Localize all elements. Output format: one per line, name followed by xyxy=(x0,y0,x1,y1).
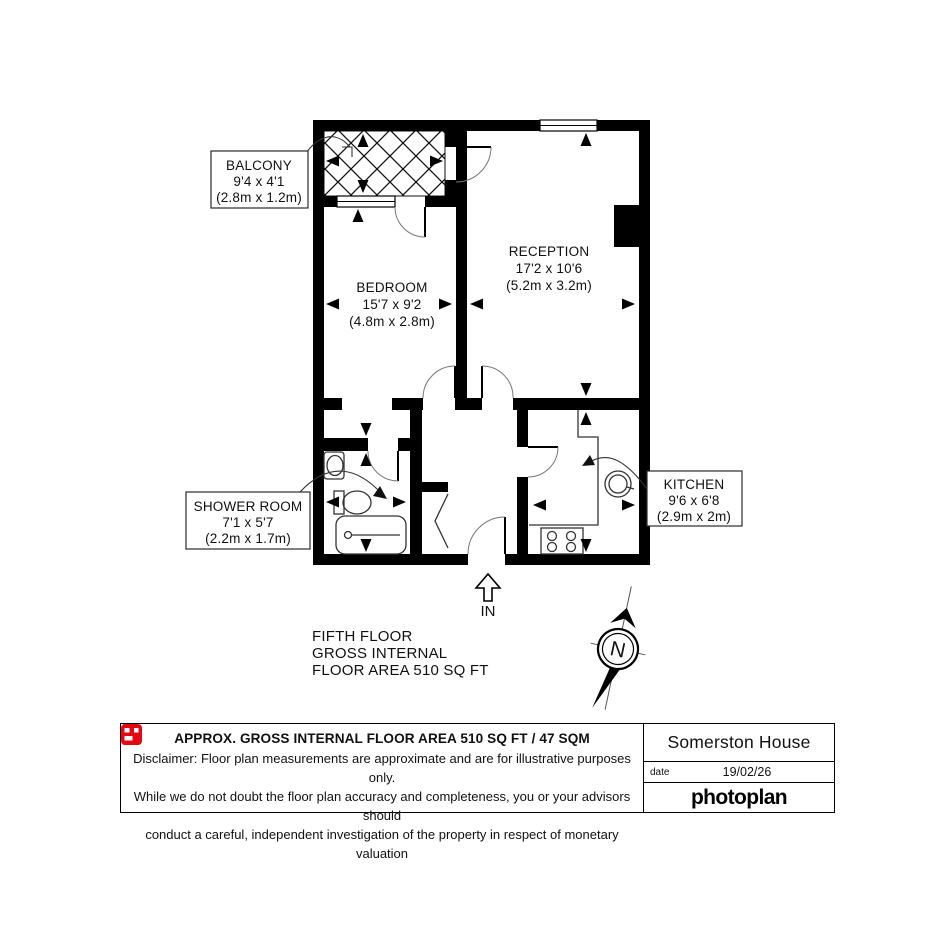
bedroom-size-metric: (4.8m x 2.8m) xyxy=(349,314,435,329)
date-label: date xyxy=(644,767,700,778)
shower-room-name: SHOWER ROOM xyxy=(194,499,303,514)
balcony-size-imperial: 9'4 x 4'1 xyxy=(233,174,284,189)
door-bedroom xyxy=(423,366,455,398)
bedroom-label: BEDROOM 15'7 x 9'2 (4.8m x 2.8m) xyxy=(349,280,435,329)
shower-room-size-imperial: 7'1 x 5'7 xyxy=(222,515,273,530)
disclaimer-line-2: While we do not doubt the floor plan acc… xyxy=(121,787,643,825)
floor-info-line1: FIFTH FLOOR xyxy=(312,628,413,645)
door-kitchen xyxy=(528,447,558,477)
footer-info-cell: Somerston House date 19/02/26 photoplan xyxy=(644,724,834,812)
north-compass-icon: N xyxy=(578,581,659,717)
shower-room-size-metric: (2.2m x 1.7m) xyxy=(205,531,291,546)
balcony-name: BALCONY xyxy=(226,158,292,173)
entrance-arrow-icon xyxy=(476,574,500,601)
photoplan-wordmark: photoplan xyxy=(691,786,787,810)
kitchen-name: KITCHEN xyxy=(664,477,725,492)
footer-disclaimer-cell: APPROX. GROSS INTERNAL FLOOR AREA 510 SQ… xyxy=(121,724,644,812)
bedroom-name: BEDROOM xyxy=(356,280,427,295)
bathtub xyxy=(336,516,406,554)
door-balcony-bedroom xyxy=(395,207,425,237)
balcony-size-metric: (2.8m x 1.2m) xyxy=(216,190,302,205)
reception-size-imperial: 17'2 x 10'6 xyxy=(516,261,583,276)
footer-table: APPROX. GROSS INTERNAL FLOOR AREA 510 SQ… xyxy=(120,723,835,813)
floor-info-line2: GROSS INTERNAL xyxy=(312,645,447,662)
reception-name: RECEPTION xyxy=(509,244,590,259)
kitchen-size-imperial: 9'6 x 6'8 xyxy=(668,493,719,508)
floorplan-page: BALCONY 9'4 x 4'1 (2.8m x 1.2m) BEDROOM … xyxy=(0,0,945,945)
property-name: Somerston House xyxy=(644,724,834,762)
balcony-label: BALCONY 9'4 x 4'1 (2.8m x 1.2m) xyxy=(211,151,308,208)
kitchen-counter xyxy=(529,410,598,525)
closet-bifold-door xyxy=(435,494,448,548)
reception-label: RECEPTION 17'2 x 10'6 (5.2m x 3.2m) xyxy=(506,244,592,293)
door-reception xyxy=(482,366,513,398)
hob xyxy=(541,528,583,554)
balcony-hatch xyxy=(324,131,445,196)
floor-info: FIFTH FLOOR GROSS INTERNAL FLOOR AREA 51… xyxy=(312,628,489,679)
toilet xyxy=(334,491,371,514)
kitchen-size-metric: (2.9m x 2m) xyxy=(657,509,731,524)
camera-icon xyxy=(121,724,142,745)
bathroom-sink xyxy=(324,452,344,479)
disclaimer-line-3: conduct a careful, independent investiga… xyxy=(121,825,643,863)
area-title: APPROX. GROSS INTERNAL FLOOR AREA 510 SQ… xyxy=(121,731,643,746)
bedroom-size-imperial: 15'7 x 9'2 xyxy=(363,297,422,312)
shower-room-label: SHOWER ROOM 7'1 x 5'7 (2.2m x 1.7m) xyxy=(186,492,310,549)
date-value: 19/02/26 xyxy=(700,765,834,779)
entrance-in-label: IN xyxy=(481,603,496,620)
photoplan-logo: photoplan xyxy=(644,783,834,812)
reception-size-metric: (5.2m x 3.2m) xyxy=(506,278,592,293)
floor-info-line3: FLOOR AREA 510 SQ FT xyxy=(312,662,489,679)
kitchen-sink xyxy=(605,471,634,497)
door-shower-room xyxy=(368,451,398,481)
date-row: date 19/02/26 xyxy=(644,762,834,783)
kitchen-label: KITCHEN 9'6 x 6'8 (2.9m x 2m) xyxy=(647,471,742,526)
door-entrance xyxy=(468,517,505,554)
disclaimer-line-1: Disclaimer: Floor plan measurements are … xyxy=(121,749,643,787)
